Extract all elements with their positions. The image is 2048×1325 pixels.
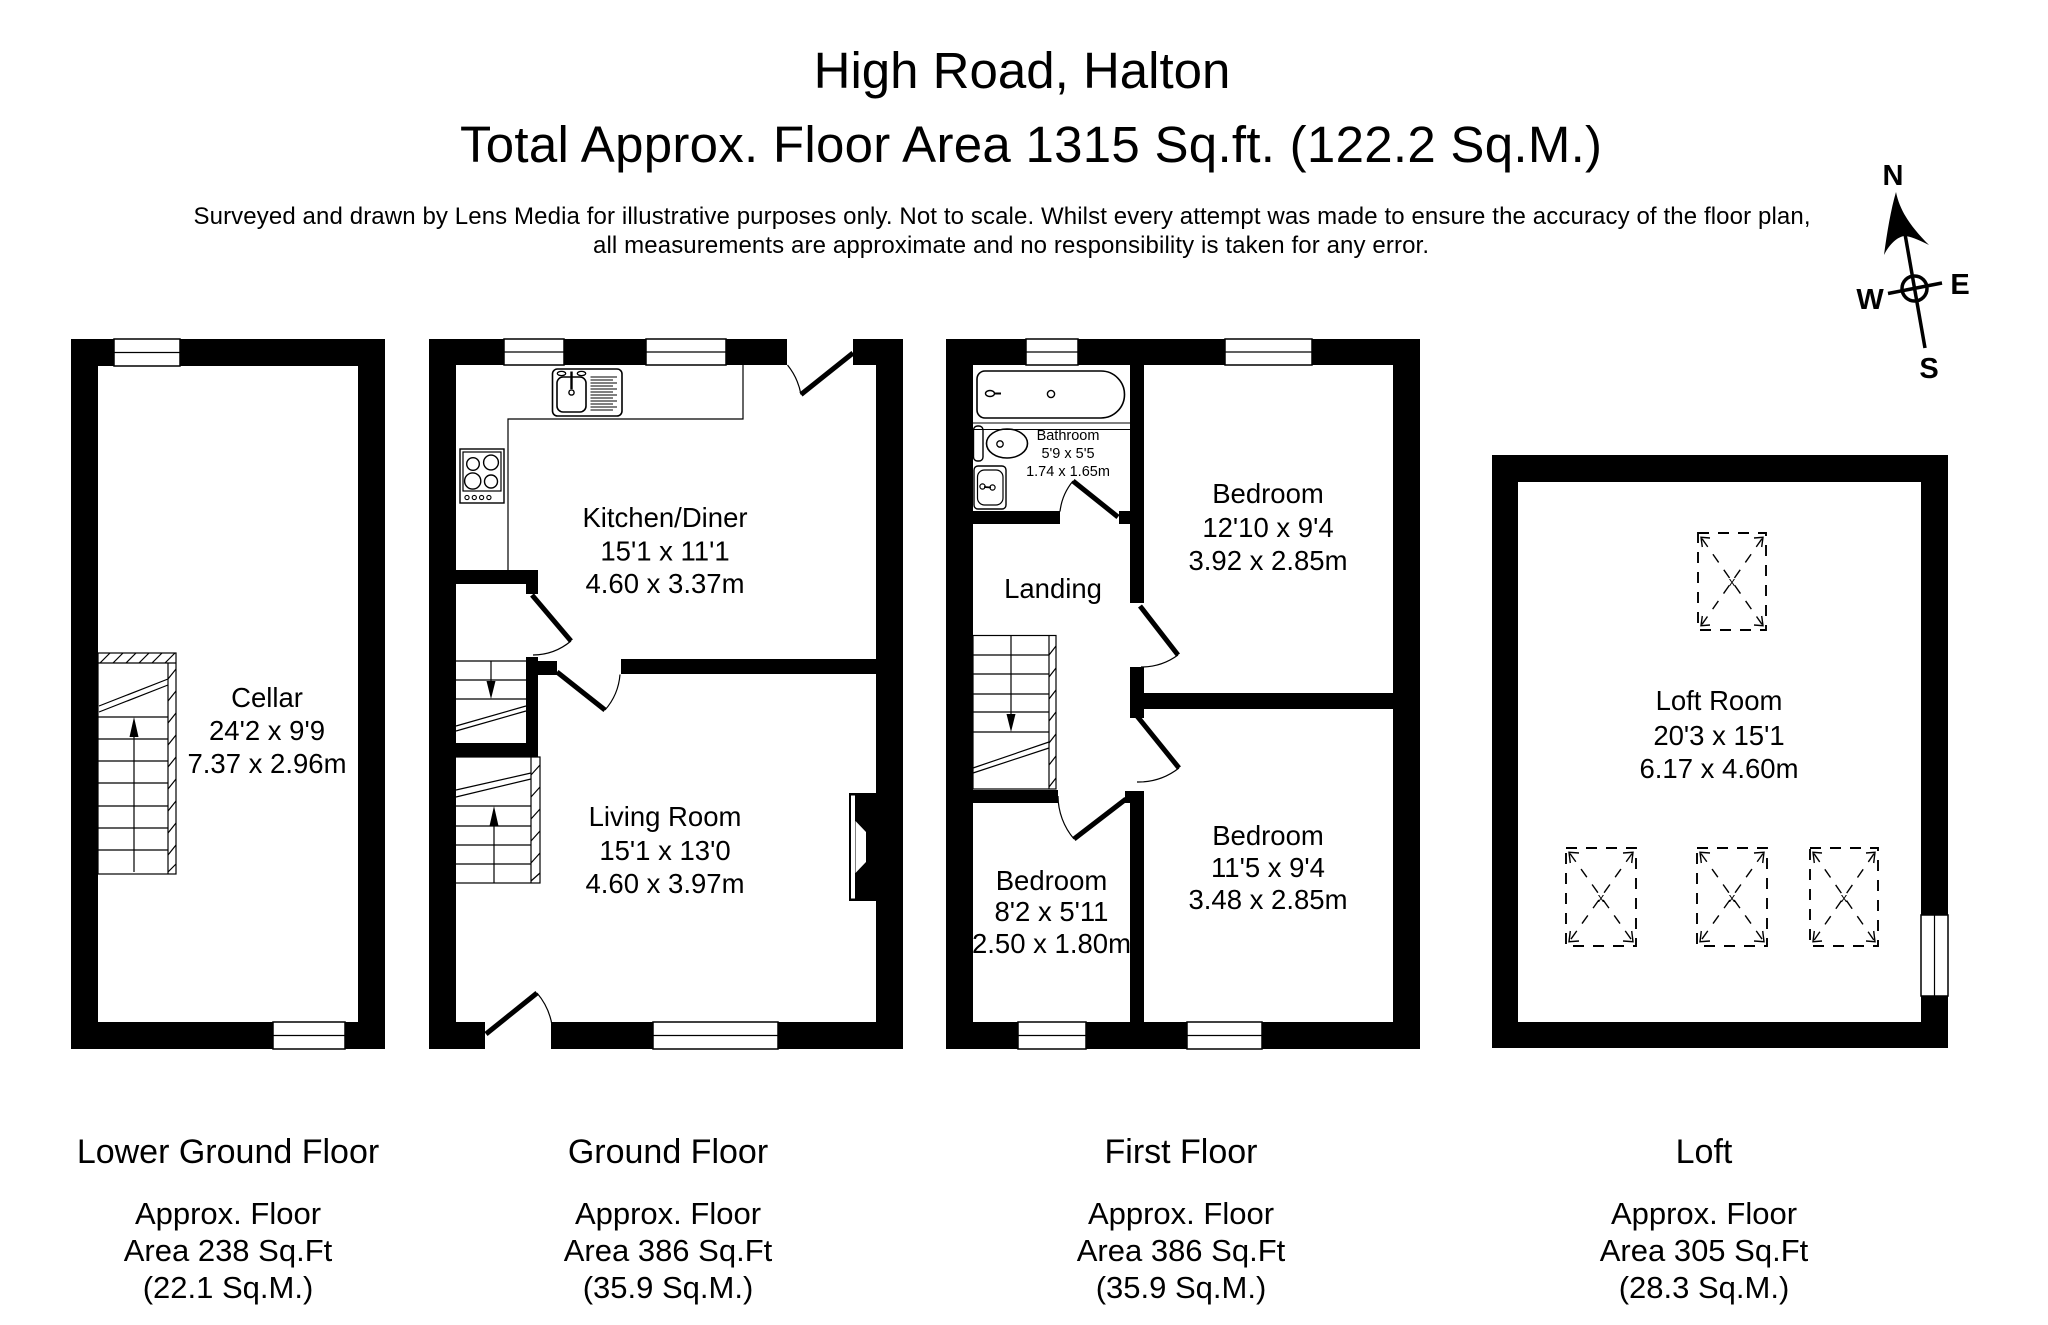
svg-text:(28.3 Sq.M.): (28.3 Sq.M.) [1619, 1270, 1790, 1305]
svg-text:3.92 x 2.85m: 3.92 x 2.85m [1189, 545, 1348, 576]
svg-text:12'10 x 9'4: 12'10 x 9'4 [1202, 512, 1333, 543]
svg-text:(22.1 Sq.M.): (22.1 Sq.M.) [143, 1270, 314, 1305]
svg-text:Bedroom: Bedroom [996, 865, 1108, 896]
svg-text:E: E [1950, 269, 1969, 301]
svg-text:6.17 x 4.60m: 6.17 x 4.60m [1640, 753, 1799, 784]
svg-text:Ground Floor: Ground Floor [568, 1133, 768, 1171]
svg-text:x: x [1598, 890, 1605, 905]
svg-text:High Road, Halton: High Road, Halton [814, 42, 1231, 99]
svg-text:x: x [1729, 574, 1736, 589]
svg-text:5'9 x 5'5: 5'9 x 5'5 [1041, 446, 1094, 462]
svg-text:3.48 x 2.85m: 3.48 x 2.85m [1189, 884, 1348, 915]
svg-text:2.50 x 1.80m: 2.50 x 1.80m [972, 928, 1131, 959]
svg-text:15'1 x 13'0: 15'1 x 13'0 [599, 835, 730, 866]
svg-text:15'1 x 11'1: 15'1 x 11'1 [600, 536, 729, 567]
svg-text:Cellar: Cellar [231, 682, 303, 713]
svg-text:Bathroom: Bathroom [1037, 428, 1100, 444]
svg-text:Area 386 Sq.Ft: Area 386 Sq.Ft [564, 1233, 773, 1268]
svg-text:Approx. Floor: Approx. Floor [1611, 1196, 1797, 1231]
svg-text:Kitchen/Diner: Kitchen/Diner [582, 502, 747, 533]
svg-text:4.60 x 3.37m: 4.60 x 3.37m [586, 568, 745, 599]
svg-text:Bedroom: Bedroom [1212, 820, 1324, 851]
svg-text:(35.9 Sq.M.): (35.9 Sq.M.) [583, 1270, 754, 1305]
svg-text:Area 386 Sq.Ft: Area 386 Sq.Ft [1077, 1233, 1286, 1268]
svg-text:7.37 x 2.96m: 7.37 x 2.96m [188, 748, 347, 779]
svg-text:Bedroom: Bedroom [1212, 478, 1324, 509]
svg-text:Total Approx. Floor Area 1315: Total Approx. Floor Area 1315 Sq.ft. (12… [460, 116, 1602, 173]
svg-text:Area 305 Sq.Ft: Area 305 Sq.Ft [1600, 1233, 1809, 1268]
svg-text:N: N [1883, 160, 1904, 192]
svg-text:W: W [1856, 284, 1884, 316]
svg-text:Lower Ground Floor: Lower Ground Floor [77, 1133, 379, 1171]
svg-text:S: S [1919, 353, 1938, 385]
svg-text:(35.9 Sq.M.): (35.9 Sq.M.) [1096, 1270, 1267, 1305]
svg-text:8'2 x 5'11: 8'2 x 5'11 [995, 896, 1109, 927]
svg-text:Approx. Floor: Approx. Floor [135, 1196, 321, 1231]
svg-text:1.74 x 1.65m: 1.74 x 1.65m [1026, 464, 1110, 480]
svg-text:Surveyed and drawn by Lens Med: Surveyed and drawn by Lens Media for ill… [194, 203, 1811, 230]
svg-text:Living Room: Living Room [589, 801, 742, 832]
svg-text:all measurements are approxima: all measurements are approximate and no … [593, 232, 1429, 259]
svg-text:24'2 x 9'9: 24'2 x 9'9 [209, 715, 325, 746]
svg-text:Approx. Floor: Approx. Floor [575, 1196, 761, 1231]
svg-text:Landing: Landing [1004, 573, 1102, 604]
svg-text:Loft: Loft [1676, 1133, 1733, 1171]
svg-text:x: x [1841, 890, 1848, 905]
svg-text:First Floor: First Floor [1105, 1133, 1258, 1171]
svg-text:4.60 x 3.97m: 4.60 x 3.97m [586, 868, 745, 899]
svg-text:x: x [1729, 890, 1736, 905]
svg-text:Area 238 Sq.Ft: Area 238 Sq.Ft [124, 1233, 333, 1268]
svg-text:Approx. Floor: Approx. Floor [1088, 1196, 1274, 1231]
svg-text:11'5 x 9'4: 11'5 x 9'4 [1211, 852, 1325, 883]
svg-text:20'3 x 15'1: 20'3 x 15'1 [1653, 720, 1784, 751]
svg-text:Loft Room: Loft Room [1656, 685, 1783, 716]
